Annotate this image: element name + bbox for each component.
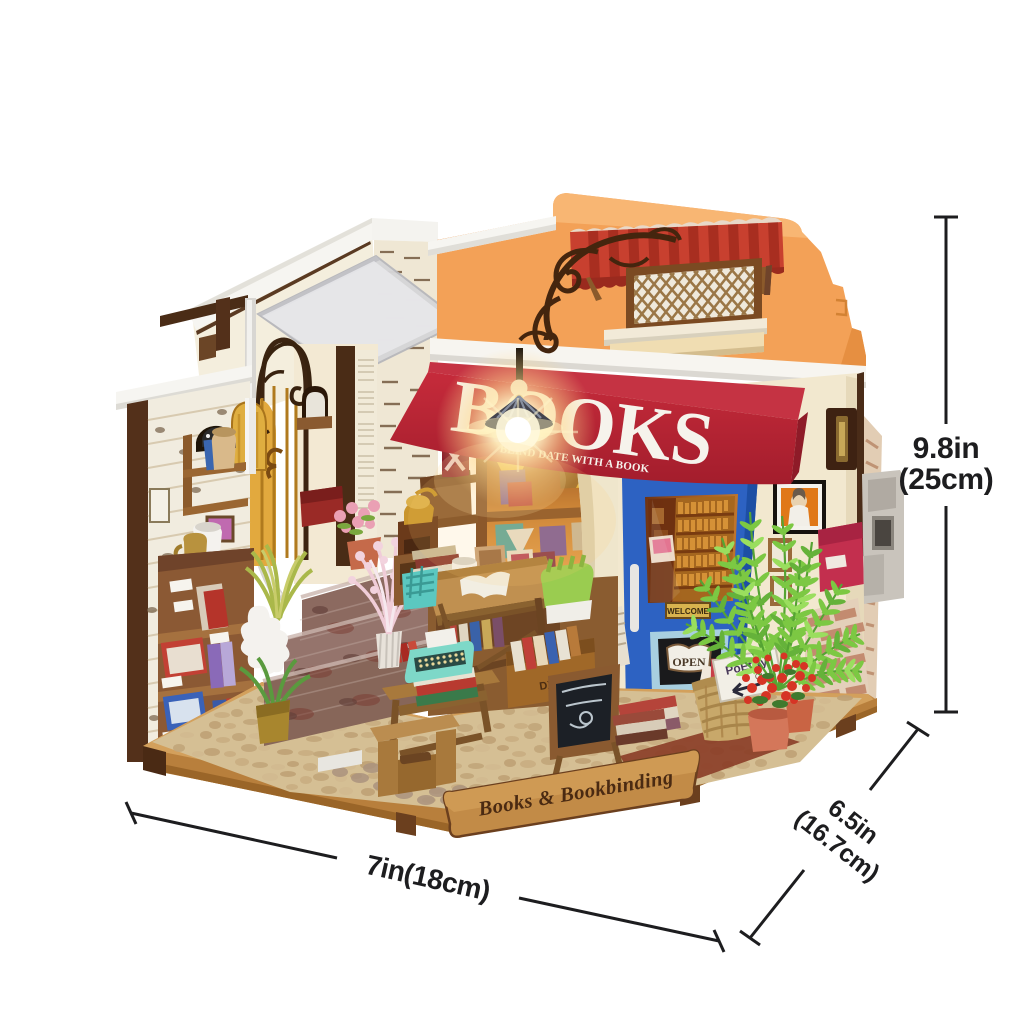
svg-text:OPEN: OPEN bbox=[672, 655, 706, 669]
svg-text:WELCOME: WELCOME bbox=[667, 607, 709, 616]
svg-text:9.8in: 9.8in bbox=[913, 432, 980, 465]
svg-text:(25cm): (25cm) bbox=[899, 463, 994, 496]
